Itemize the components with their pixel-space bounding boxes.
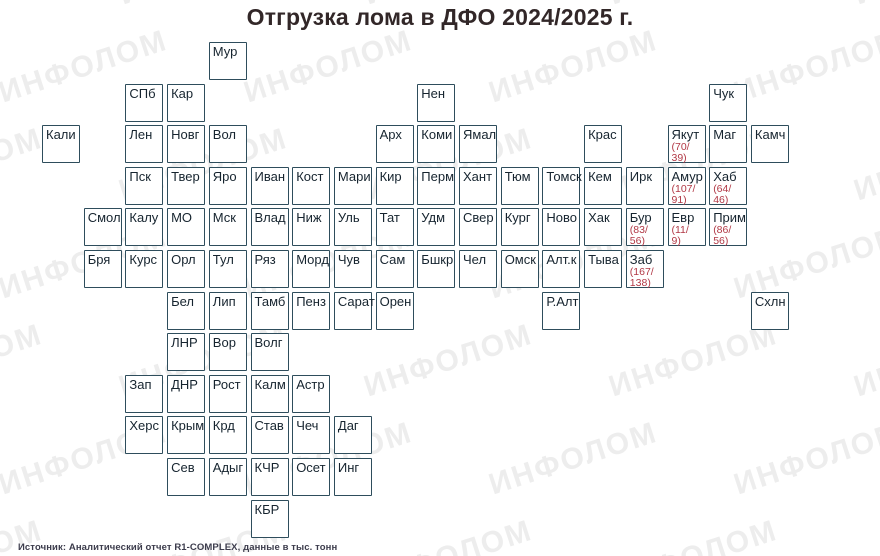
region-label: Рост [213,377,246,392]
region-values: (64/ 46) [713,184,746,206]
region-tile-Яро: Яро [209,167,247,205]
region-label: Крд [213,418,246,433]
region-label: Бшкр [421,252,454,267]
region-label: Лен [129,127,162,142]
region-label: Курс [129,252,162,267]
region-tile-Алт.к: Алт.к [542,250,580,288]
region-tile-Томск: Томск [542,167,580,205]
region-tile-Кем: Кем [584,167,622,205]
region-tile-Чув: Чув [334,250,372,288]
region-tile-Лен: Лен [125,125,163,163]
region-label: Р.Алт [546,294,579,309]
region-label: Томск [546,169,579,184]
region-label: Алт.к [546,252,579,267]
region-label: Орен [380,294,413,309]
region-label: Тамб [255,294,288,309]
region-label: Осет [296,460,329,475]
region-values: (107/ 91) [672,184,705,206]
region-tile-МО: МО [167,208,205,246]
region-tile-Р.Алт: Р.Алт [542,292,580,330]
region-tile-Крас: Крас [584,125,622,163]
region-tile-Лип: Лип [209,292,247,330]
region-label: Смол [88,210,121,225]
region-tile-Схлн: Схлн [751,292,789,330]
region-label: Ирк [630,169,663,184]
region-label: Кали [46,127,79,142]
region-label: Зап [129,377,162,392]
region-tile-grid: МурСПбКарНенЧукКалиЛенНовгВолАрхКомиЯмал… [0,0,880,556]
region-tile-Сев: Сев [167,458,205,496]
region-tile-ЛНР: ЛНР [167,333,205,371]
region-label: Бел [171,294,204,309]
region-tile-Свер: Свер [459,208,497,246]
region-label: Ряз [255,252,288,267]
region-label: Евр [672,210,705,225]
region-label: Удм [421,210,454,225]
region-tile-Влад: Влад [251,208,289,246]
region-label: Кем [588,169,621,184]
region-label: Омск [505,252,538,267]
region-tile-Бря: Бря [84,250,122,288]
region-label: Перм [421,169,454,184]
region-label: Адыг [213,460,246,475]
region-label: Кар [171,86,204,101]
region-label: Сарат [338,294,371,309]
region-tile-Ново: Ново [542,208,580,246]
region-label: Хант [463,169,496,184]
region-label: Чук [713,86,746,101]
region-label: Схлн [755,294,788,309]
region-label: Якут [672,127,705,142]
region-tile-Инг: Инг [334,458,372,496]
region-tile-Мари: Мари [334,167,372,205]
region-values: (11/ 9) [672,225,705,247]
region-label: Волг [255,335,288,350]
region-label: СПб [129,86,162,101]
region-tile-Курс: Курс [125,250,163,288]
region-label: Калу [129,210,162,225]
region-label: Калм [255,377,288,392]
region-values: (70/ 39) [672,142,705,164]
region-tile-Крым: Крым [167,416,205,454]
region-label: Став [255,418,288,433]
region-label: Ново [546,210,579,225]
region-values: (86/ 56) [713,225,746,247]
region-label: Маг [713,127,746,142]
infographic-canvas: ИНФОЛОМИНФОЛОМИНФОЛОМИНФОЛОМИНФОЛОМИНФОЛ… [0,0,880,556]
region-tile-СПб: СПб [125,84,163,122]
source-note: Источник: Аналитический отчет R1-COMPLEX… [18,542,337,553]
region-tile-Орл: Орл [167,250,205,288]
region-label: Херс [129,418,162,433]
region-label: МО [171,210,204,225]
region-tile-Прим: Прим(86/ 56) [709,208,747,246]
region-tile-Уль: Уль [334,208,372,246]
region-label: Кург [505,210,538,225]
region-tile-Евр: Евр(11/ 9) [668,208,706,246]
region-tile-Мур: Мур [209,42,247,80]
region-label: Мск [213,210,246,225]
region-tile-Пск: Пск [125,167,163,205]
region-tile-Камч: Камч [751,125,789,163]
region-label: Инг [338,460,371,475]
region-tile-Морд: Морд [292,250,330,288]
region-tile-Амур: Амур(107/ 91) [668,167,706,205]
region-label: Тат [380,210,413,225]
region-tile-Новг: Новг [167,125,205,163]
region-tile-Хак: Хак [584,208,622,246]
region-tile-ДНР: ДНР [167,375,205,413]
region-tile-Хант: Хант [459,167,497,205]
region-tile-Сам: Сам [376,250,414,288]
region-tile-КЧР: КЧР [251,458,289,496]
region-tile-Чел: Чел [459,250,497,288]
region-tile-Адыг: Адыг [209,458,247,496]
region-tile-Ниж: Ниж [292,208,330,246]
region-tile-Хаб: Хаб(64/ 46) [709,167,747,205]
region-label: Морд [296,252,329,267]
region-label: Камч [755,127,788,142]
region-tile-Коми: Коми [417,125,455,163]
region-tile-Сарат: Сарат [334,292,372,330]
region-tile-Бел: Бел [167,292,205,330]
region-label: Астр [296,377,329,392]
region-label: Арх [380,127,413,142]
region-label: Тул [213,252,246,267]
region-label: Сев [171,460,204,475]
region-tile-Став: Став [251,416,289,454]
region-label: Ямал [463,127,496,142]
region-label: Яро [213,169,246,184]
region-label: Орл [171,252,204,267]
region-tile-Тамб: Тамб [251,292,289,330]
region-label: Кост [296,169,329,184]
region-label: Хаб [713,169,746,184]
region-label: Лип [213,294,246,309]
region-label: Тыва [588,252,621,267]
region-label: Уль [338,210,371,225]
region-label: Чел [463,252,496,267]
region-tile-Кост: Кост [292,167,330,205]
region-tile-Пенз: Пенз [292,292,330,330]
region-tile-Кали: Кали [42,125,80,163]
region-tile-Чук: Чук [709,84,747,122]
region-label: Пск [129,169,162,184]
region-label: Свер [463,210,496,225]
region-label: Мур [213,44,246,59]
region-tile-Твер: Твер [167,167,205,205]
region-label: Ниж [296,210,329,225]
region-label: Коми [421,127,454,142]
region-tile-Удм: Удм [417,208,455,246]
region-tile-Крд: Крд [209,416,247,454]
region-tile-Астр: Астр [292,375,330,413]
region-label: Бря [88,252,121,267]
region-label: Тюм [505,169,538,184]
region-tile-Ирк: Ирк [626,167,664,205]
region-label: КЧР [255,460,288,475]
region-label: Амур [672,169,705,184]
region-tile-Тюм: Тюм [501,167,539,205]
region-tile-Ямал: Ямал [459,125,497,163]
region-tile-Ряз: Ряз [251,250,289,288]
region-label: Чеч [296,418,329,433]
region-tile-Калу: Калу [125,208,163,246]
region-label: Новг [171,127,204,142]
region-values: (83/ 56) [630,225,663,247]
region-tile-Чеч: Чеч [292,416,330,454]
region-label: Иван [255,169,288,184]
region-tile-Омск: Омск [501,250,539,288]
region-tile-Орен: Орен [376,292,414,330]
region-label: Пенз [296,294,329,309]
region-label: Мари [338,169,371,184]
region-tile-Осет: Осет [292,458,330,496]
region-tile-Херс: Херс [125,416,163,454]
region-label: Нен [421,86,454,101]
region-tile-Волг: Волг [251,333,289,371]
region-tile-КБР: КБР [251,500,289,538]
region-tile-Бшкр: Бшкр [417,250,455,288]
region-tile-Вор: Вор [209,333,247,371]
region-tile-Якут: Якут(70/ 39) [668,125,706,163]
region-label: Вор [213,335,246,350]
region-tile-Смол: Смол [84,208,122,246]
region-label: Крас [588,127,621,142]
region-tile-Зап: Зап [125,375,163,413]
region-tile-Калм: Калм [251,375,289,413]
region-tile-Рост: Рост [209,375,247,413]
region-label: Прим [713,210,746,225]
region-label: Сам [380,252,413,267]
region-tile-Перм: Перм [417,167,455,205]
region-tile-Иван: Иван [251,167,289,205]
region-label: Влад [255,210,288,225]
region-tile-Тат: Тат [376,208,414,246]
region-tile-Тул: Тул [209,250,247,288]
region-values: (167/ 138) [630,267,663,289]
region-tile-Арх: Арх [376,125,414,163]
region-label: КБР [255,502,288,517]
region-tile-Бур: Бур(83/ 56) [626,208,664,246]
region-label: Кир [380,169,413,184]
region-tile-Маг: Маг [709,125,747,163]
region-tile-Вол: Вол [209,125,247,163]
region-tile-Кар: Кар [167,84,205,122]
region-label: Твер [171,169,204,184]
region-label: Хак [588,210,621,225]
region-label: Заб [630,252,663,267]
region-tile-Мск: Мск [209,208,247,246]
region-label: Вол [213,127,246,142]
region-label: Крым [171,418,204,433]
region-label: Чув [338,252,371,267]
region-label: ДНР [171,377,204,392]
region-tile-Кир: Кир [376,167,414,205]
region-label: ЛНР [171,335,204,350]
region-tile-Даг: Даг [334,416,372,454]
region-tile-Заб: Заб(167/ 138) [626,250,664,288]
region-tile-Кург: Кург [501,208,539,246]
region-label: Даг [338,418,371,433]
region-tile-Нен: Нен [417,84,455,122]
region-label: Бур [630,210,663,225]
region-tile-Тыва: Тыва [584,250,622,288]
